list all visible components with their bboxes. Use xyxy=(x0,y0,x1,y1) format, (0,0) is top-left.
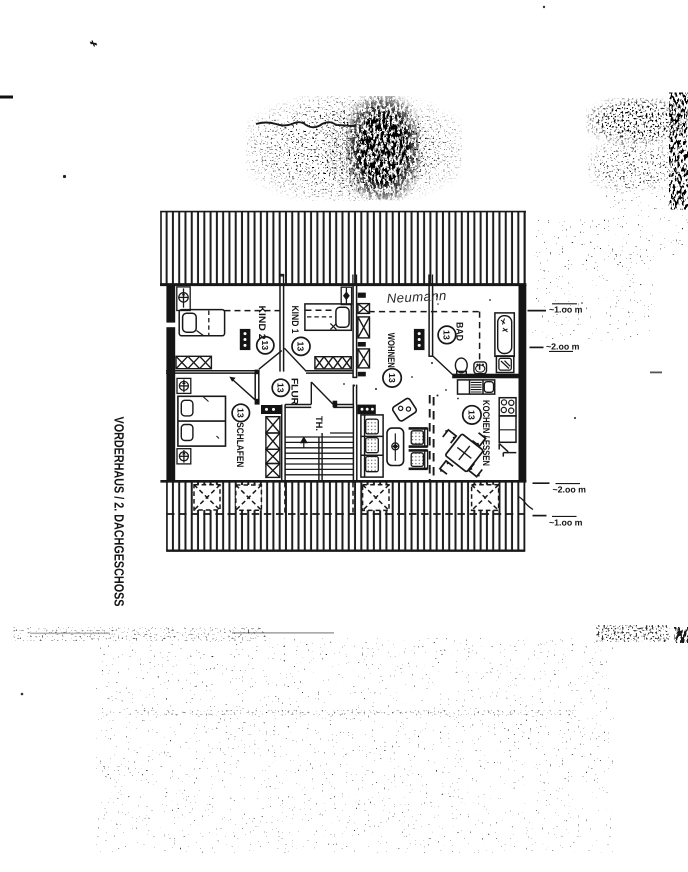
svg-text:13: 13 xyxy=(275,383,285,393)
svg-text:FLUR: FLUR xyxy=(288,378,299,405)
svg-text:KIND 1: KIND 1 xyxy=(289,306,300,335)
svg-text:TH.: TH. xyxy=(314,416,325,431)
svg-text:SCHLAFEN: SCHLAFEN xyxy=(234,422,245,467)
svg-text:BAD: BAD xyxy=(453,322,464,341)
svg-text:WOHNEN: WOHNEN xyxy=(385,333,396,368)
svg-text:13: 13 xyxy=(260,340,270,350)
svg-text:~2.oo m: ~2.oo m xyxy=(546,341,580,351)
svg-text:~1.oo m: ~1.oo m xyxy=(549,517,583,527)
svg-text:13: 13 xyxy=(296,342,306,352)
svg-text:KIND 2: KIND 2 xyxy=(256,306,267,340)
svg-text:KOCHEN / ESSEN: KOCHEN / ESSEN xyxy=(480,400,491,466)
svg-text:VORDERHAUS / 2. DACHGESCHOSS: VORDERHAUS / 2. DACHGESCHOSS xyxy=(111,417,126,607)
svg-text:13: 13 xyxy=(235,408,245,418)
svg-text:~2.oo m: ~2.oo m xyxy=(553,484,587,494)
svg-text:13: 13 xyxy=(442,330,452,340)
svg-text:13: 13 xyxy=(387,373,397,383)
svg-text:13: 13 xyxy=(467,410,477,420)
